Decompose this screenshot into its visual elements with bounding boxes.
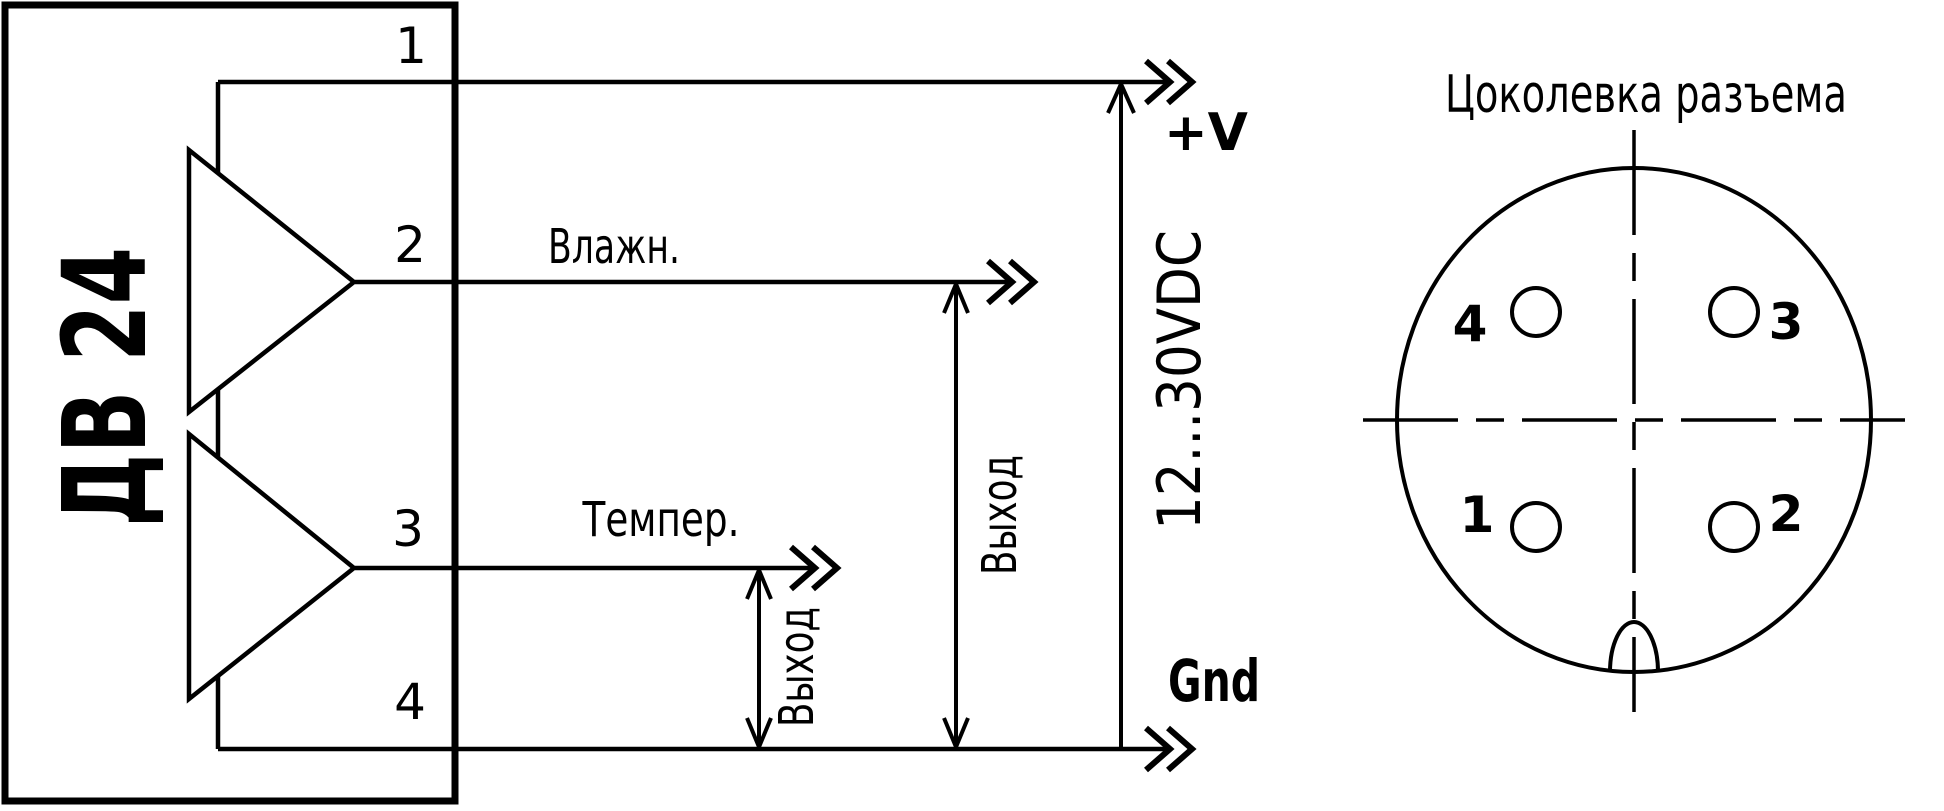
sensor-wiring-diagram: ДВ 24 1 2 3 4 Влажн. Темпер. Выход Выход… (0, 0, 1944, 807)
amplifier-1-triangle-icon (189, 150, 354, 412)
supply-range-label: 12...30VDC (1145, 230, 1215, 530)
temperature-wire-label: Темпер. (582, 492, 740, 548)
supply-gnd-label: Gnd (1168, 647, 1260, 715)
connector-pin4-number: 4 (1453, 295, 1488, 353)
wiring-diagram-page: ДВ 24 1 2 3 4 Влажн. Темпер. Выход Выход… (0, 0, 1944, 807)
pin3-number: 3 (392, 500, 424, 558)
humidity-wire-label: Влажн. (548, 219, 680, 275)
connector-pin1-hole-icon (1512, 503, 1560, 551)
connector-pin3-number: 3 (1769, 293, 1804, 351)
pin1-number: 1 (395, 17, 427, 75)
connector-pin2-number: 2 (1769, 485, 1804, 543)
connector-pin1-number: 1 (1460, 486, 1495, 544)
connector-pin4-hole-icon (1512, 288, 1560, 336)
connector-pinout-title: Цоколевка разъема (1445, 65, 1847, 125)
connector-pin2-hole-icon (1710, 503, 1758, 551)
amplifier-2-triangle-icon (189, 434, 354, 699)
pin4-number: 4 (394, 673, 426, 731)
connector-pin3-hole-icon (1710, 288, 1758, 336)
device-label: ДВ 24 (39, 247, 173, 527)
humidity-output-label: Выход (972, 455, 1028, 575)
supply-plus-label: +V (1164, 103, 1248, 163)
pin2-number: 2 (394, 216, 426, 274)
temperature-output-label: Выход (769, 607, 825, 727)
